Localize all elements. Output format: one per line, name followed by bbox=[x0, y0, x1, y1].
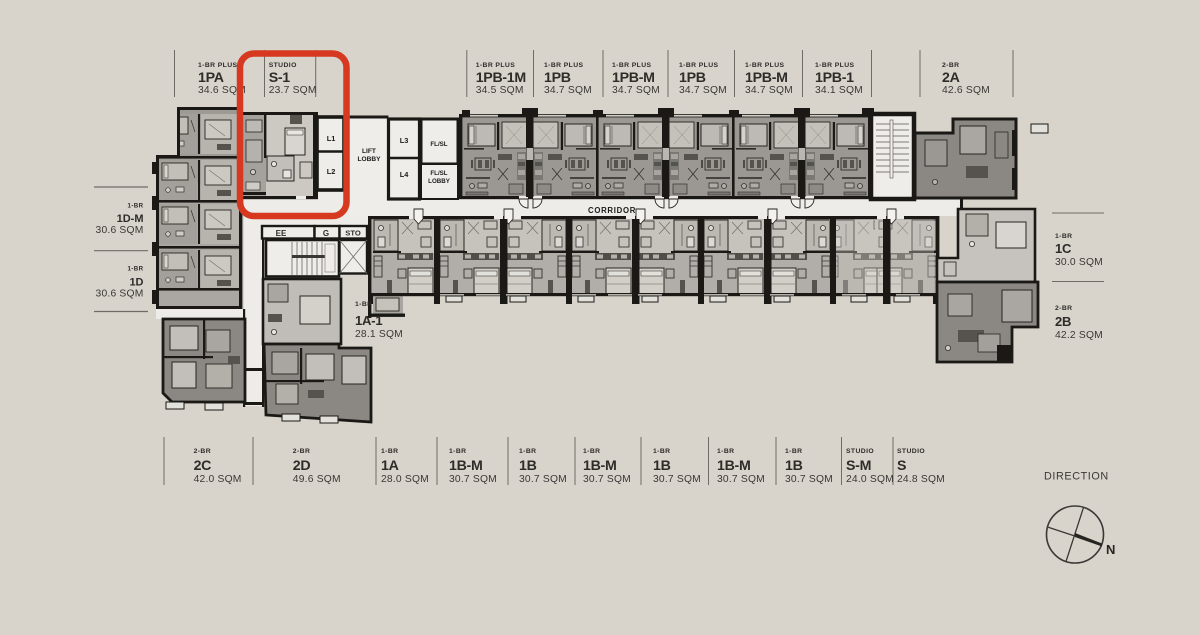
svg-text:1PB: 1PB bbox=[679, 70, 706, 86]
svg-text:2-BR: 2-BR bbox=[1055, 305, 1072, 312]
svg-text:30.7 SQM: 30.7 SQM bbox=[519, 474, 567, 485]
svg-text:34.7 SQM: 34.7 SQM bbox=[745, 85, 793, 96]
svg-text:1-BR PLUS: 1-BR PLUS bbox=[679, 62, 719, 69]
svg-text:STO: STO bbox=[345, 229, 361, 238]
svg-text:2D: 2D bbox=[293, 458, 311, 474]
svg-text:1PB-1M: 1PB-1M bbox=[476, 70, 526, 86]
svg-text:1D: 1D bbox=[129, 277, 143, 289]
svg-text:34.5 SQM: 34.5 SQM bbox=[476, 85, 524, 96]
svg-text:28.0 SQM: 28.0 SQM bbox=[381, 474, 429, 485]
svg-text:49.6 SQM: 49.6 SQM bbox=[293, 474, 341, 485]
svg-text:42.2 SQM: 42.2 SQM bbox=[1055, 330, 1103, 341]
svg-text:1-BR: 1-BR bbox=[127, 203, 143, 210]
svg-text:1PB-M: 1PB-M bbox=[745, 70, 788, 86]
svg-text:30.7 SQM: 30.7 SQM bbox=[717, 474, 765, 485]
svg-text:30.7 SQM: 30.7 SQM bbox=[449, 474, 497, 485]
svg-text:1D-M: 1D-M bbox=[117, 213, 144, 225]
svg-text:1-BR PLUS: 1-BR PLUS bbox=[815, 62, 855, 69]
svg-text:2A: 2A bbox=[942, 70, 960, 86]
svg-text:S-M: S-M bbox=[846, 458, 871, 474]
svg-text:2-BR: 2-BR bbox=[942, 62, 959, 69]
svg-text:42.6 SQM: 42.6 SQM bbox=[942, 85, 990, 96]
svg-text:L4: L4 bbox=[400, 170, 410, 179]
svg-text:N: N bbox=[1106, 542, 1115, 557]
svg-text:S-1: S-1 bbox=[269, 70, 291, 86]
svg-text:1-BR: 1-BR bbox=[355, 301, 372, 308]
svg-text:1PB: 1PB bbox=[544, 70, 571, 86]
svg-text:1-BR: 1-BR bbox=[127, 266, 143, 273]
svg-text:23.7 SQM: 23.7 SQM bbox=[269, 85, 317, 96]
svg-text:FL/SL: FL/SL bbox=[430, 141, 447, 148]
svg-text:L3: L3 bbox=[400, 136, 409, 145]
svg-text:2C: 2C bbox=[194, 458, 212, 474]
svg-text:1-BR: 1-BR bbox=[519, 448, 536, 455]
svg-text:1-BR: 1-BR bbox=[381, 448, 398, 455]
svg-text:1A: 1A bbox=[381, 458, 399, 474]
svg-text:30.7 SQM: 30.7 SQM bbox=[785, 474, 833, 485]
svg-text:1-BR: 1-BR bbox=[449, 448, 466, 455]
svg-text:1B-M: 1B-M bbox=[449, 458, 482, 474]
svg-text:2B: 2B bbox=[1055, 314, 1071, 329]
svg-text:STUDIO: STUDIO bbox=[846, 448, 874, 455]
svg-text:28.1 SQM: 28.1 SQM bbox=[355, 329, 403, 340]
svg-text:24.0 SQM: 24.0 SQM bbox=[846, 474, 894, 485]
svg-text:S: S bbox=[897, 458, 906, 474]
svg-text:30.6 SQM: 30.6 SQM bbox=[96, 225, 144, 236]
svg-text:1-BR: 1-BR bbox=[653, 448, 670, 455]
svg-text:1-BR: 1-BR bbox=[717, 448, 734, 455]
svg-text:34.7 SQM: 34.7 SQM bbox=[544, 85, 592, 96]
svg-text:1-BR: 1-BR bbox=[583, 448, 600, 455]
svg-text:1PA: 1PA bbox=[198, 70, 224, 86]
svg-text:LOBBY: LOBBY bbox=[357, 156, 381, 163]
svg-text:1-BR: 1-BR bbox=[1055, 233, 1072, 240]
svg-text:34.1 SQM: 34.1 SQM bbox=[815, 85, 863, 96]
svg-text:30.7 SQM: 30.7 SQM bbox=[583, 474, 631, 485]
svg-text:1-BR PLUS: 1-BR PLUS bbox=[745, 62, 785, 69]
svg-text:34.7 SQM: 34.7 SQM bbox=[612, 85, 660, 96]
svg-text:G: G bbox=[323, 229, 329, 238]
svg-text:1B-M: 1B-M bbox=[717, 458, 750, 474]
svg-text:1B: 1B bbox=[785, 458, 803, 474]
svg-text:STUDIO: STUDIO bbox=[269, 62, 297, 69]
svg-text:1B-M: 1B-M bbox=[583, 458, 616, 474]
svg-text:2-BR: 2-BR bbox=[293, 448, 310, 455]
svg-text:30.0 SQM: 30.0 SQM bbox=[1055, 257, 1103, 268]
svg-text:FL/SL: FL/SL bbox=[430, 170, 447, 177]
svg-text:34.7 SQM: 34.7 SQM bbox=[679, 85, 727, 96]
svg-text:STUDIO: STUDIO bbox=[897, 448, 925, 455]
svg-text:1-BR PLUS: 1-BR PLUS bbox=[544, 62, 584, 69]
svg-text:EE: EE bbox=[276, 229, 287, 238]
svg-text:LOBBY: LOBBY bbox=[428, 178, 451, 185]
svg-text:1-BR PLUS: 1-BR PLUS bbox=[612, 62, 652, 69]
svg-text:1-BR: 1-BR bbox=[785, 448, 802, 455]
svg-text:42.0 SQM: 42.0 SQM bbox=[194, 474, 242, 485]
svg-text:24.8 SQM: 24.8 SQM bbox=[897, 474, 945, 485]
svg-text:30.6 SQM: 30.6 SQM bbox=[96, 289, 144, 300]
svg-text:1B: 1B bbox=[653, 458, 671, 474]
svg-text:2-BR: 2-BR bbox=[194, 448, 211, 455]
svg-text:DIRECTION: DIRECTION bbox=[1044, 471, 1109, 483]
svg-text:1B: 1B bbox=[519, 458, 537, 474]
svg-text:1-BR PLUS: 1-BR PLUS bbox=[198, 62, 238, 69]
svg-text:1A-1: 1A-1 bbox=[355, 313, 382, 328]
svg-text:30.7 SQM: 30.7 SQM bbox=[653, 474, 701, 485]
svg-text:LIFT: LIFT bbox=[362, 148, 376, 155]
svg-text:1PB-1: 1PB-1 bbox=[815, 70, 854, 86]
svg-text:CORRIDOR: CORRIDOR bbox=[588, 206, 636, 215]
svg-text:L2: L2 bbox=[327, 167, 336, 176]
svg-text:1-BR PLUS: 1-BR PLUS bbox=[476, 62, 516, 69]
svg-text:1C: 1C bbox=[1055, 241, 1072, 256]
svg-text:L1: L1 bbox=[327, 134, 336, 143]
svg-text:1PB-M: 1PB-M bbox=[612, 70, 655, 86]
